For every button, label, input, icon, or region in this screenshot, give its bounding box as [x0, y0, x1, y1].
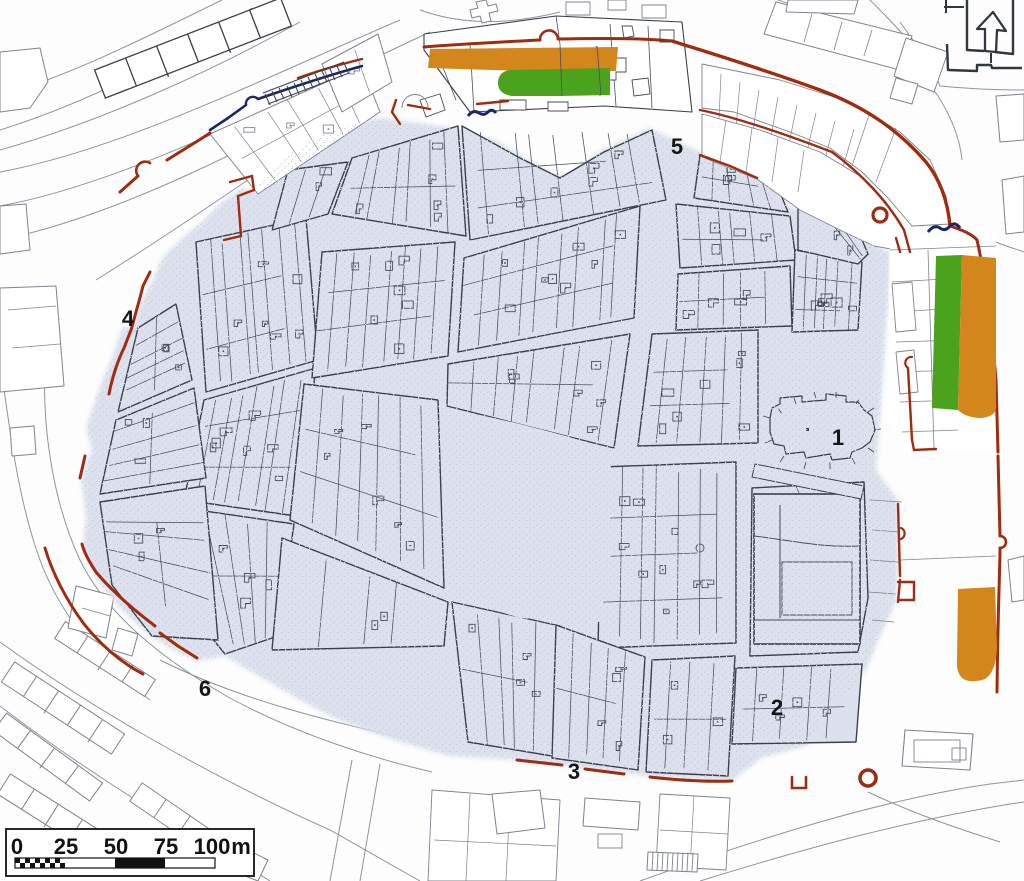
svg-text:1: 1 — [832, 425, 844, 450]
svg-text:50: 50 — [104, 834, 128, 859]
svg-text:2: 2 — [771, 695, 783, 720]
svg-text:3: 3 — [568, 759, 580, 784]
svg-text:5: 5 — [671, 134, 683, 159]
svg-text:100: 100 — [194, 834, 231, 859]
svg-text:0: 0 — [11, 834, 23, 859]
svg-text:25: 25 — [54, 834, 78, 859]
svg-text:m: m — [231, 834, 251, 859]
svg-text:4: 4 — [122, 306, 135, 331]
svg-text:6: 6 — [199, 676, 211, 701]
svg-text:75: 75 — [154, 834, 178, 859]
